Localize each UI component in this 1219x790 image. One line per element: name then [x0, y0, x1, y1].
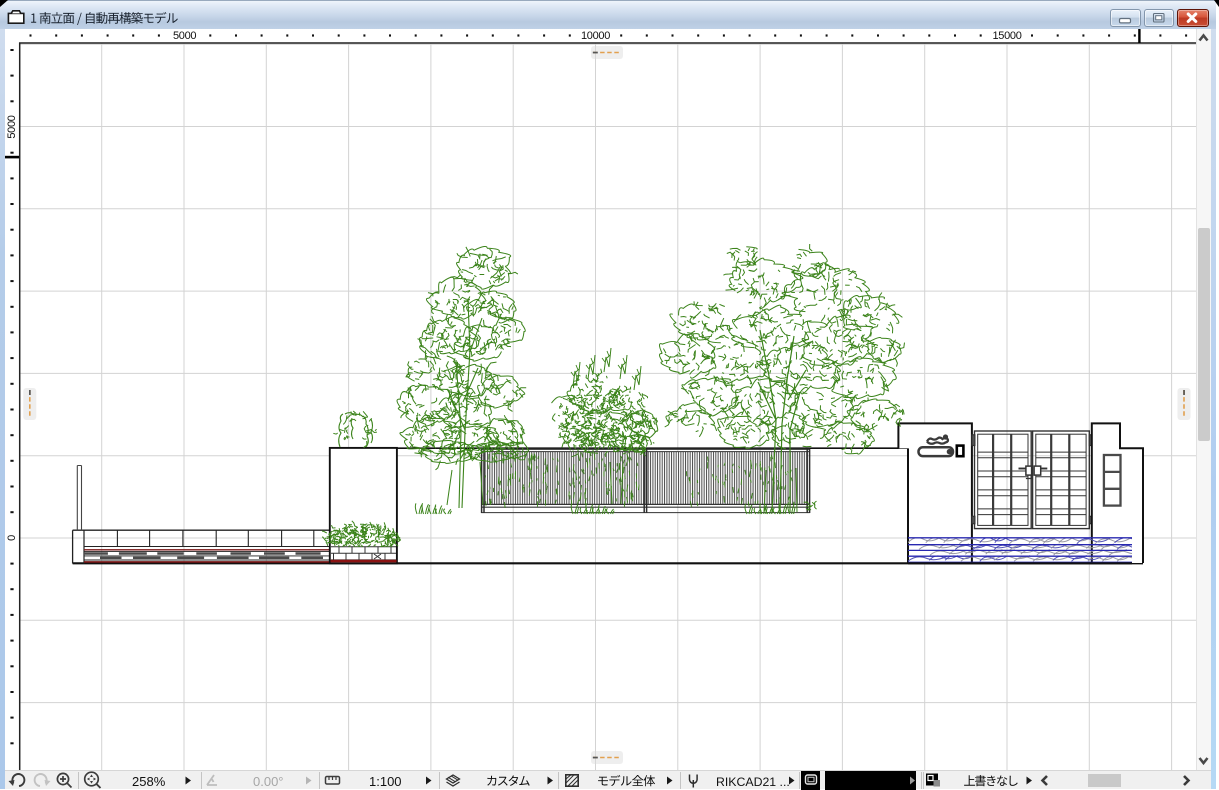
svg-text:5000: 5000 [6, 115, 18, 138]
svg-text:5000: 5000 [173, 30, 196, 42]
svg-text:0: 0 [6, 535, 18, 541]
svg-text:15000: 15000 [992, 30, 1021, 42]
svg-text:10000: 10000 [581, 30, 610, 42]
